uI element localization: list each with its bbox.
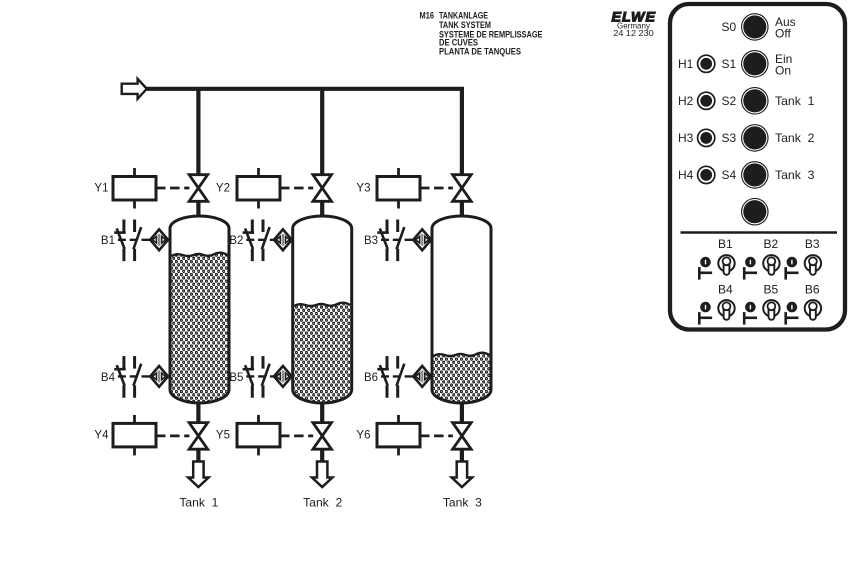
svg-text:B3: B3 [805,237,820,251]
svg-text:B2: B2 [763,237,778,251]
svg-text:B4: B4 [718,283,733,297]
svg-text:Tank 3: Tank 3 [443,496,482,510]
svg-text:Y6: Y6 [356,430,370,442]
svg-text:H4: H4 [678,168,694,182]
svg-text:Y3: Y3 [356,183,370,195]
svg-text:B5: B5 [229,372,243,384]
svg-text:PLANTA DE TANQUES: PLANTA DE TANQUES [439,47,521,57]
svg-text:Tank 3: Tank 3 [775,168,815,182]
svg-text:B6: B6 [364,372,378,384]
svg-text:B1: B1 [718,237,733,251]
svg-text:S4: S4 [722,168,737,182]
svg-text:B5: B5 [763,283,778,297]
svg-text:H2: H2 [678,94,694,108]
svg-text:TANKANLAGE: TANKANLAGE [439,10,488,20]
svg-text:B4: B4 [101,372,116,384]
svg-text:24 12 230: 24 12 230 [613,29,654,38]
svg-text:B2: B2 [229,235,243,247]
svg-text:Off: Off [775,27,791,41]
svg-text:B1: B1 [101,235,115,247]
svg-text:Tank 1: Tank 1 [179,496,218,510]
svg-text:S0: S0 [722,20,737,34]
svg-text:Y2: Y2 [216,183,230,195]
svg-text:Tank 2: Tank 2 [775,131,815,145]
svg-text:B3: B3 [364,235,378,247]
svg-text:Y1: Y1 [94,183,108,195]
svg-text:H1: H1 [678,57,694,71]
svg-text:Y4: Y4 [94,430,109,442]
svg-text:S2: S2 [722,94,737,108]
svg-text:H3: H3 [678,131,694,145]
svg-text:B6: B6 [805,283,820,297]
svg-text:Tank 1: Tank 1 [775,94,815,108]
svg-text:S1: S1 [722,57,737,71]
svg-text:S3: S3 [722,131,737,145]
svg-text:Y5: Y5 [216,430,230,442]
svg-text:On: On [775,63,791,77]
svg-text:Tank 2: Tank 2 [303,496,342,510]
svg-text:M16: M16 [420,10,435,20]
